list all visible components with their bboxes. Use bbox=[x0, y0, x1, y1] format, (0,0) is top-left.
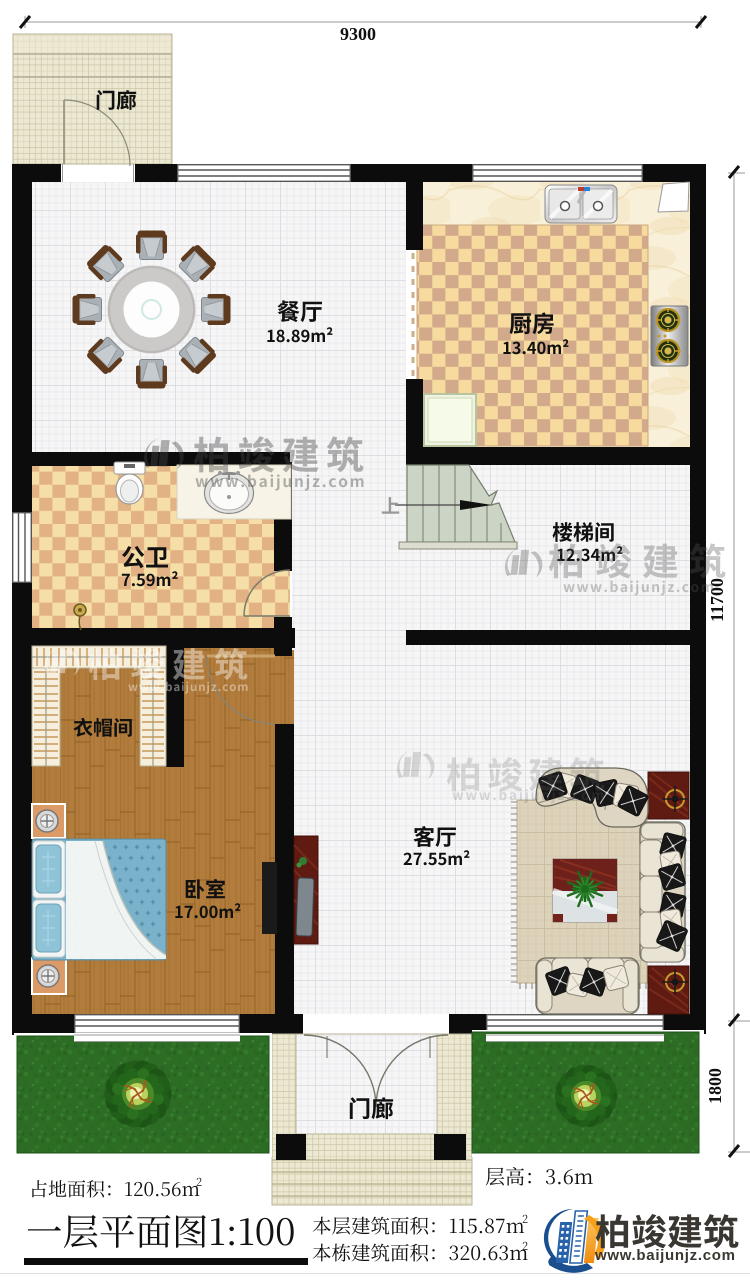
svg-text:1800: 1800 bbox=[705, 1068, 725, 1104]
svg-text:9300: 9300 bbox=[340, 24, 376, 44]
svg-text:www.baijunjz.com: www.baijunjz.com bbox=[594, 1247, 736, 1264]
